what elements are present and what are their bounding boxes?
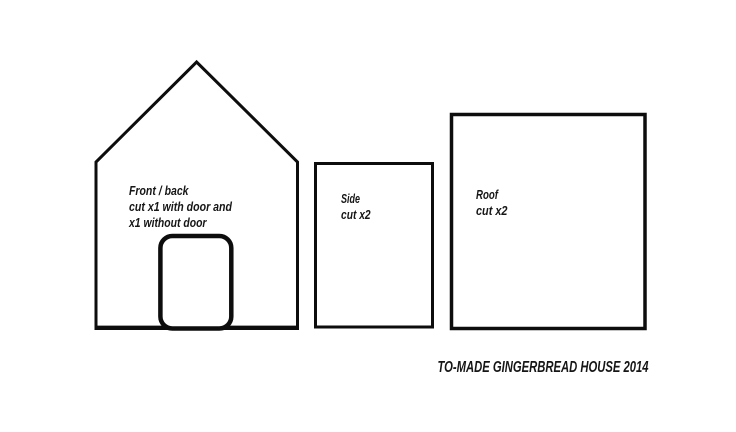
svg-text:cut x2: cut x2: [341, 208, 371, 222]
svg-text:x1 without door: x1 without door: [128, 216, 207, 230]
svg-text:Roof: Roof: [476, 188, 499, 202]
svg-text:TO-MADE GINGERBREAD HOUSE 2014: TO-MADE GINGERBREAD HOUSE 2014: [438, 359, 649, 376]
svg-text:Side: Side: [341, 192, 360, 206]
svg-text:cut x1 with door and: cut x1 with door and: [129, 200, 232, 214]
svg-text:cut x2: cut x2: [476, 204, 508, 218]
svg-text:Front / back: Front / back: [129, 184, 189, 198]
